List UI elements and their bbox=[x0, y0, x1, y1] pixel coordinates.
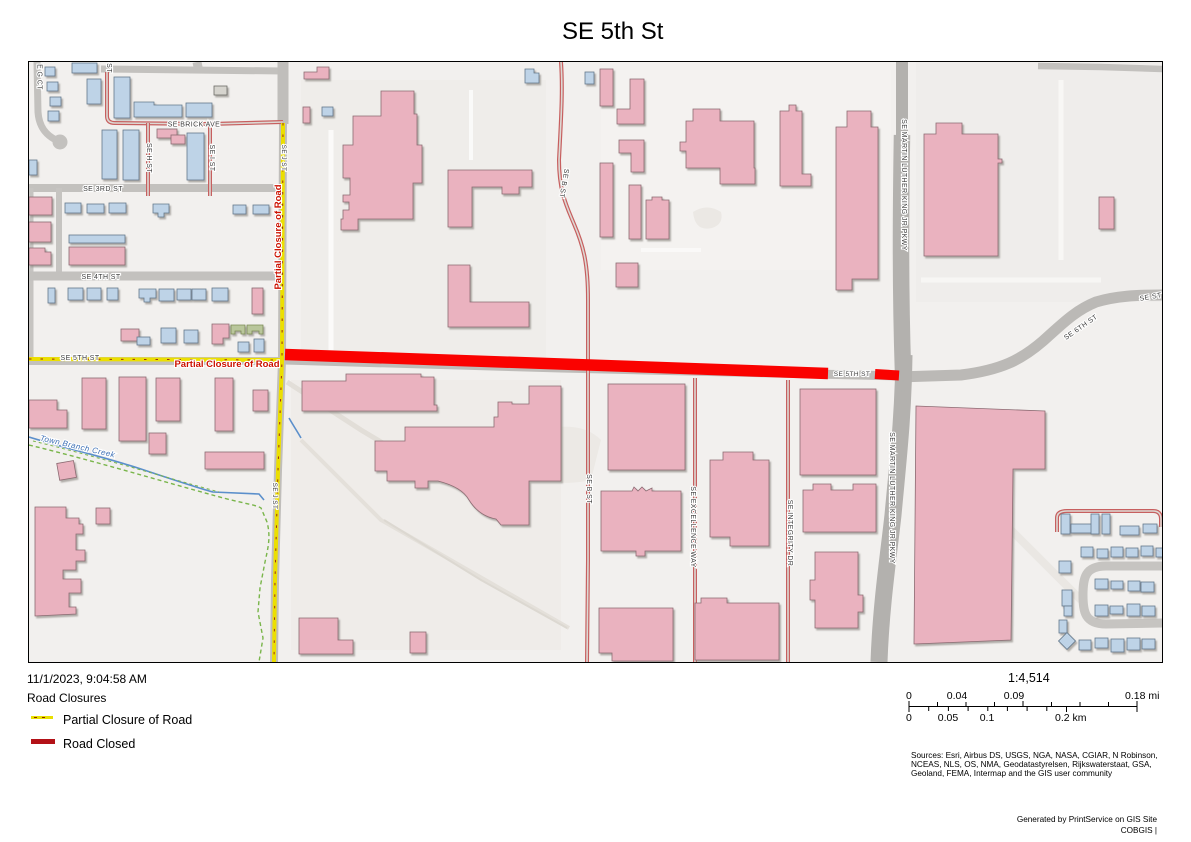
svg-text:ST: ST bbox=[105, 63, 112, 73]
svg-text:SE EXCELLENCE WAY: SE EXCELLENCE WAY bbox=[689, 486, 696, 568]
svg-text:0: 0 bbox=[906, 690, 912, 702]
svg-text:SE MARTIN LUTHER KING JR PKWY: SE MARTIN LUTHER KING JR PKWY bbox=[900, 119, 907, 251]
svg-text:0.2 km: 0.2 km bbox=[1055, 712, 1087, 724]
svg-text:0.18 mi: 0.18 mi bbox=[1125, 690, 1159, 702]
svg-text:E G CT: E G CT bbox=[36, 64, 43, 90]
svg-text:0.1: 0.1 bbox=[980, 712, 995, 724]
svg-text:SE 5TH ST: SE 5TH ST bbox=[834, 371, 870, 378]
svg-text:Partial Closure of Road: Partial Closure of Road bbox=[273, 184, 284, 289]
svg-text:SE 4TH ST: SE 4TH ST bbox=[82, 274, 121, 281]
svg-text:SE B ST: SE B ST bbox=[585, 474, 592, 504]
svg-text:SE 3RD ST: SE 3RD ST bbox=[83, 186, 123, 193]
svg-text:SE I ST: SE I ST bbox=[208, 145, 215, 172]
svg-text:SE BRICK AVE: SE BRICK AVE bbox=[168, 122, 221, 129]
svg-text:0.05: 0.05 bbox=[938, 712, 959, 724]
svg-text:SE J ST: SE J ST bbox=[271, 483, 278, 510]
svg-text:Partial Closure of Road: Partial Closure of Road bbox=[174, 359, 279, 370]
svg-text:0: 0 bbox=[906, 712, 912, 724]
svg-text:SE INTEGRITY DR: SE INTEGRITY DR bbox=[786, 500, 793, 567]
svg-text:SE MARTIN LUTHER KING JR PKWY: SE MARTIN LUTHER KING JR PKWY bbox=[888, 432, 895, 564]
svg-text:0.04: 0.04 bbox=[947, 690, 968, 702]
svg-text:SE J ST: SE J ST bbox=[280, 145, 287, 172]
svg-text:SE 5TH ST: SE 5TH ST bbox=[61, 355, 100, 362]
svg-text:0.09: 0.09 bbox=[1004, 690, 1025, 702]
svg-text:SE H ST: SE H ST bbox=[145, 143, 152, 173]
